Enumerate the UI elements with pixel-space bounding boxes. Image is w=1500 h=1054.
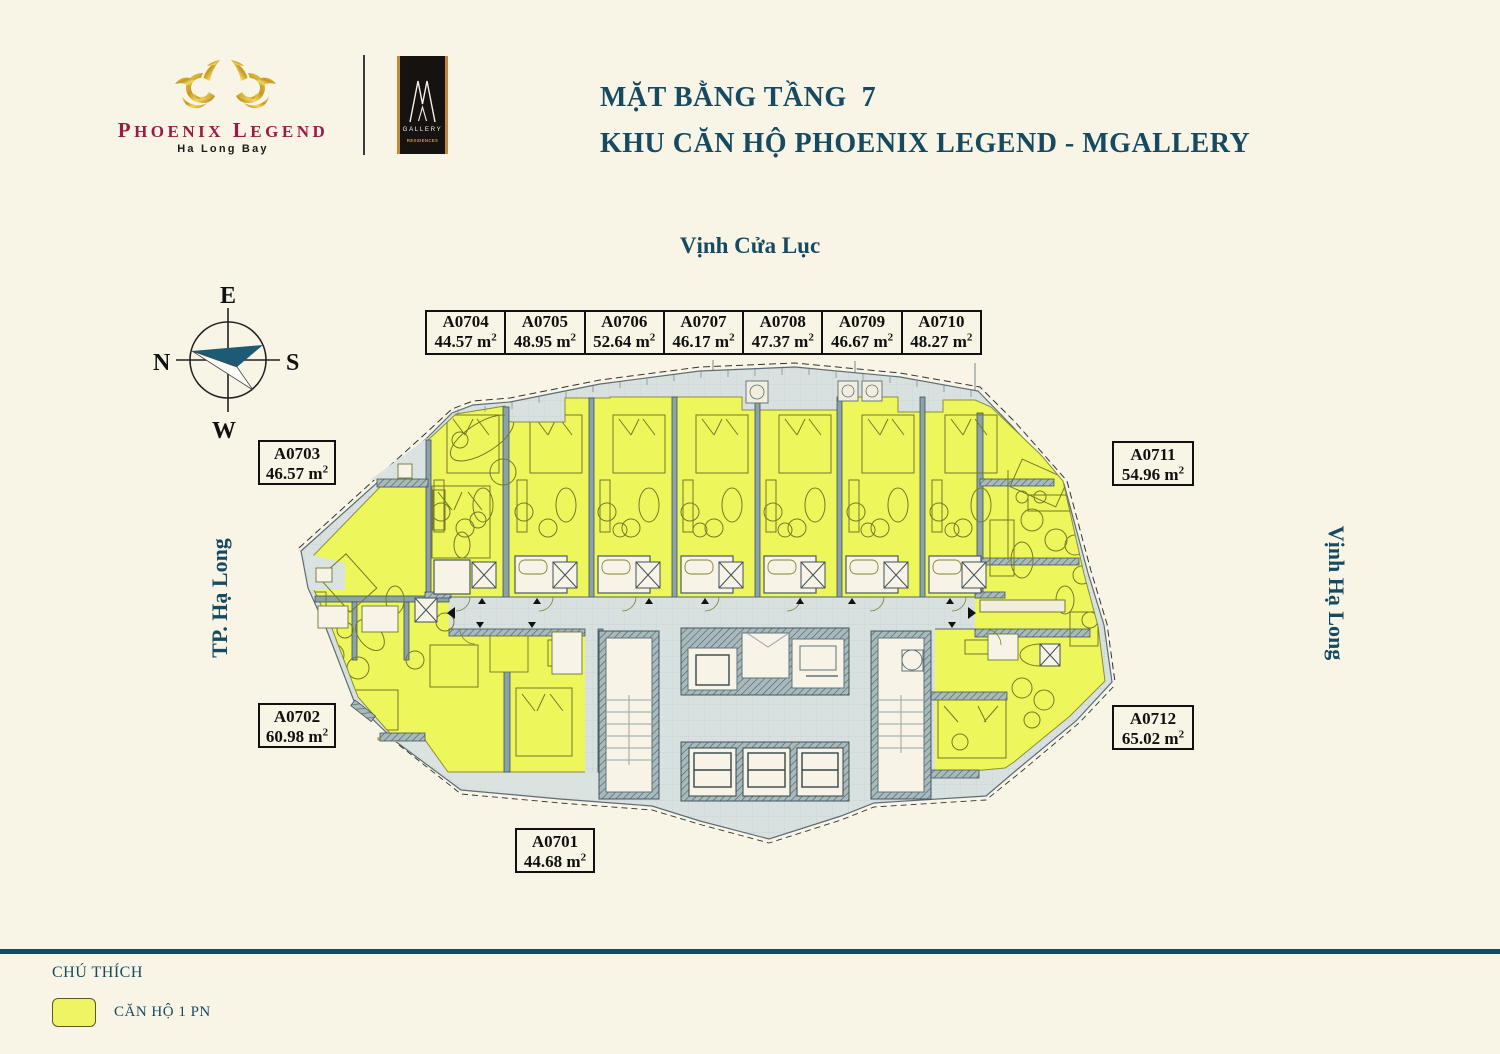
svg-text:W: W: [212, 418, 236, 444]
svg-text:E: E: [220, 283, 236, 309]
svg-text:S: S: [286, 350, 299, 376]
svg-text:N: N: [153, 350, 171, 376]
svg-text:GALLERY: GALLERY: [403, 126, 443, 133]
svg-text:RESIDENCES: RESIDENCES: [407, 138, 439, 143]
